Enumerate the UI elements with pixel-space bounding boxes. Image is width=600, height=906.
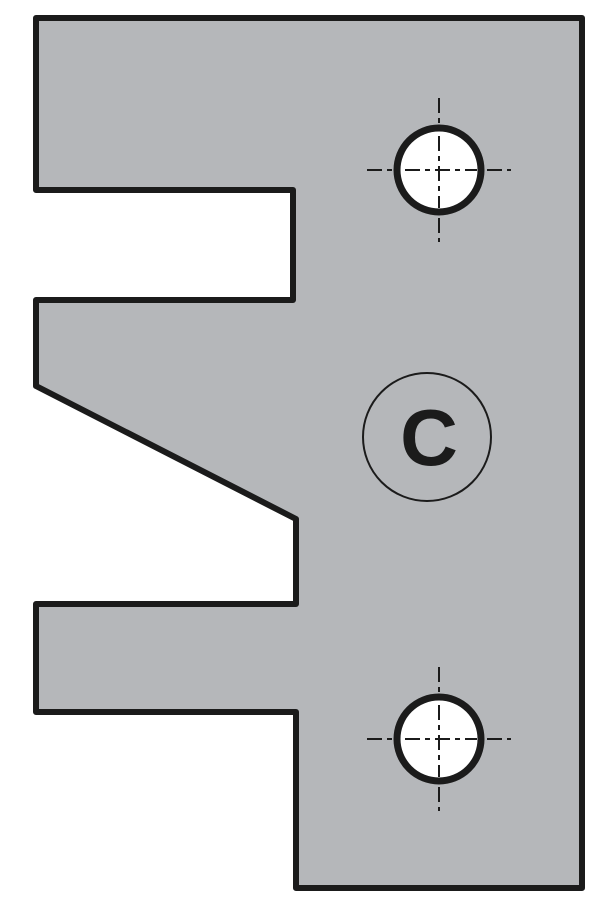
knife-profile-diagram: C — [0, 0, 600, 906]
knife-profile-shape — [36, 18, 582, 888]
drawing-canvas: C — [0, 0, 600, 906]
profile-label: C — [400, 393, 458, 482]
